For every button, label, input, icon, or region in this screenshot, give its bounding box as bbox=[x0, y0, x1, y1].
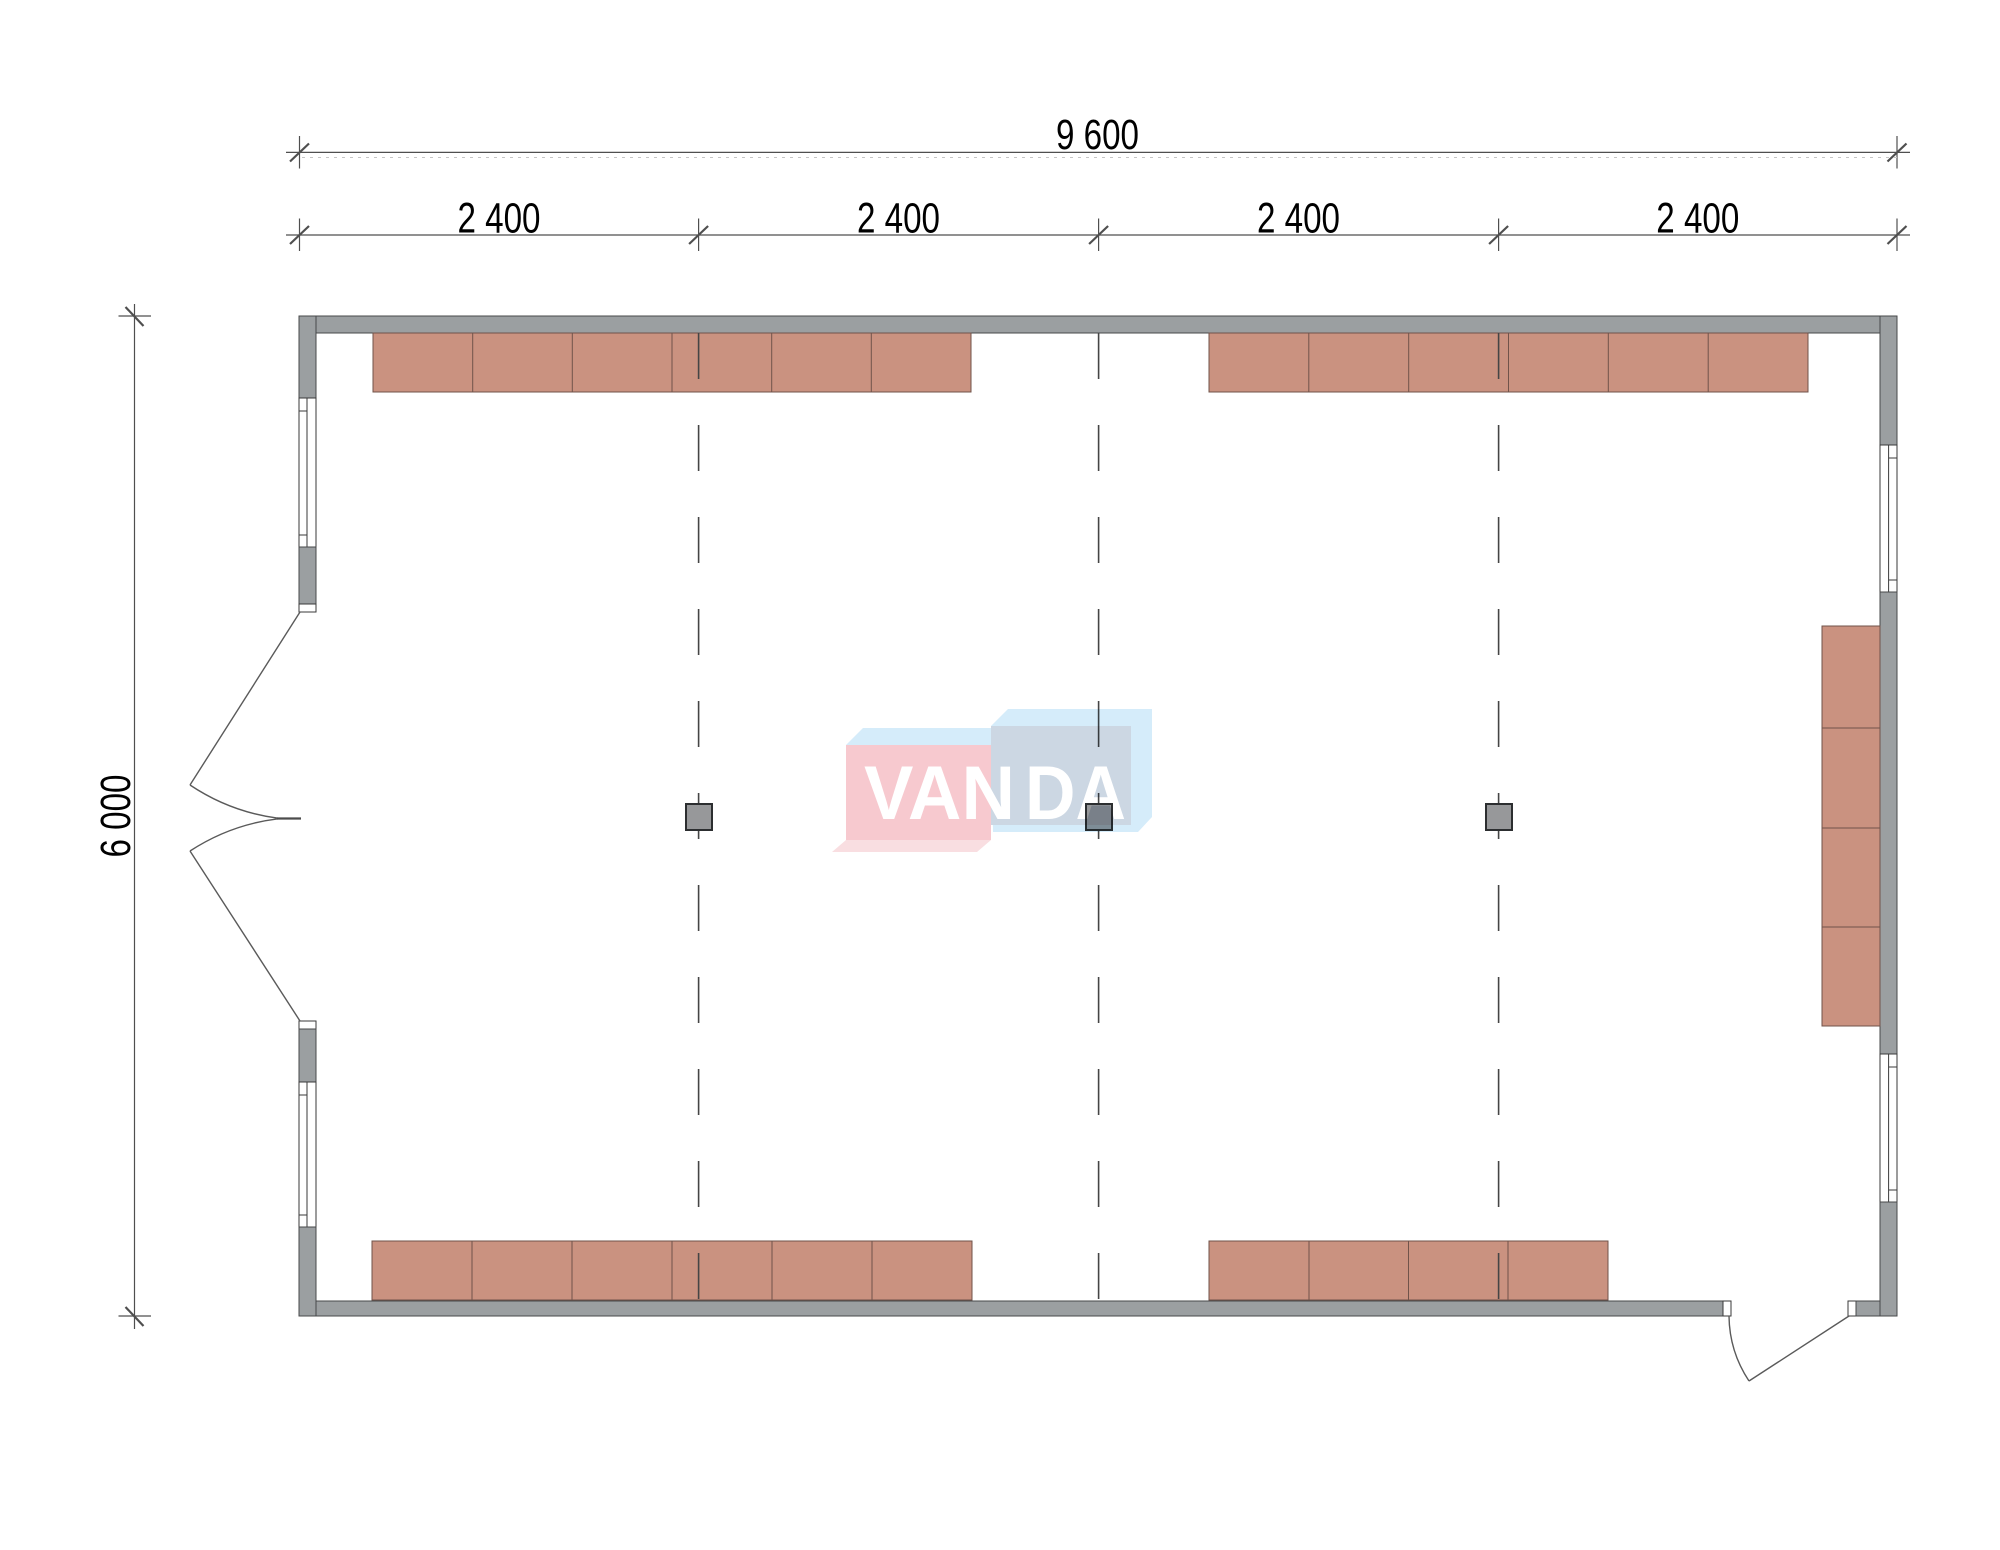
svg-text:DA: DA bbox=[1025, 751, 1126, 836]
svg-text:2 400: 2 400 bbox=[458, 195, 541, 243]
svg-text:9 600: 9 600 bbox=[1056, 111, 1139, 159]
svg-text:2 400: 2 400 bbox=[857, 195, 940, 243]
svg-text:2 400: 2 400 bbox=[1257, 195, 1340, 243]
svg-text:6 000: 6 000 bbox=[92, 775, 140, 858]
svg-text:2 400: 2 400 bbox=[1656, 195, 1739, 243]
svg-text:VAN: VAN bbox=[864, 751, 1015, 836]
